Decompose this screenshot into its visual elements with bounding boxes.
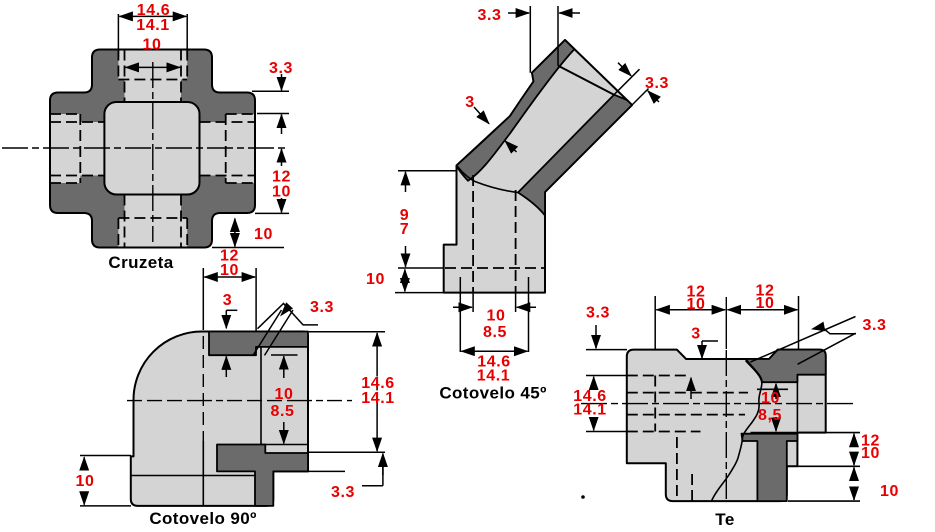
svg-text:10: 10 <box>275 386 294 403</box>
svg-text:8,5: 8,5 <box>758 407 782 424</box>
svg-text:14.1: 14.1 <box>477 368 511 385</box>
svg-text:10: 10 <box>756 295 775 312</box>
svg-text:14.1: 14.1 <box>573 402 607 419</box>
svg-text:10: 10 <box>880 483 899 500</box>
svg-text:10: 10 <box>143 37 162 54</box>
svg-text:Cotovelo 45º: Cotovelo 45º <box>439 384 546 403</box>
svg-text:14.1: 14.1 <box>361 390 395 407</box>
svg-text:3.3: 3.3 <box>586 305 610 322</box>
svg-text:3.3: 3.3 <box>310 299 334 316</box>
svg-text:10: 10 <box>220 262 239 279</box>
svg-text:Cruzeta: Cruzeta <box>108 253 173 272</box>
svg-text:3: 3 <box>223 292 233 309</box>
svg-text:10: 10 <box>254 226 273 243</box>
svg-text:10: 10 <box>272 184 291 201</box>
svg-text:10: 10 <box>761 390 780 407</box>
svg-text:3.3: 3.3 <box>477 7 501 24</box>
svg-text:10: 10 <box>487 308 506 325</box>
svg-text:3.3: 3.3 <box>331 484 355 501</box>
svg-text:3.3: 3.3 <box>269 60 293 77</box>
svg-text:Te: Te <box>715 510 734 529</box>
svg-text:10: 10 <box>76 473 95 490</box>
svg-text:3: 3 <box>691 326 701 343</box>
svg-text:10: 10 <box>366 271 385 288</box>
svg-text:8.5: 8.5 <box>483 324 507 341</box>
svg-text:10: 10 <box>861 445 880 462</box>
svg-text:3.3: 3.3 <box>645 75 669 92</box>
svg-text:8.5: 8.5 <box>270 403 294 420</box>
svg-text:10: 10 <box>687 296 706 313</box>
svg-text:14.1: 14.1 <box>136 17 170 34</box>
svg-text:3: 3 <box>465 94 475 111</box>
svg-text:3.3: 3.3 <box>862 317 886 334</box>
svg-text:7: 7 <box>400 221 410 238</box>
svg-text:Cotovelo 90º: Cotovelo 90º <box>149 509 256 528</box>
